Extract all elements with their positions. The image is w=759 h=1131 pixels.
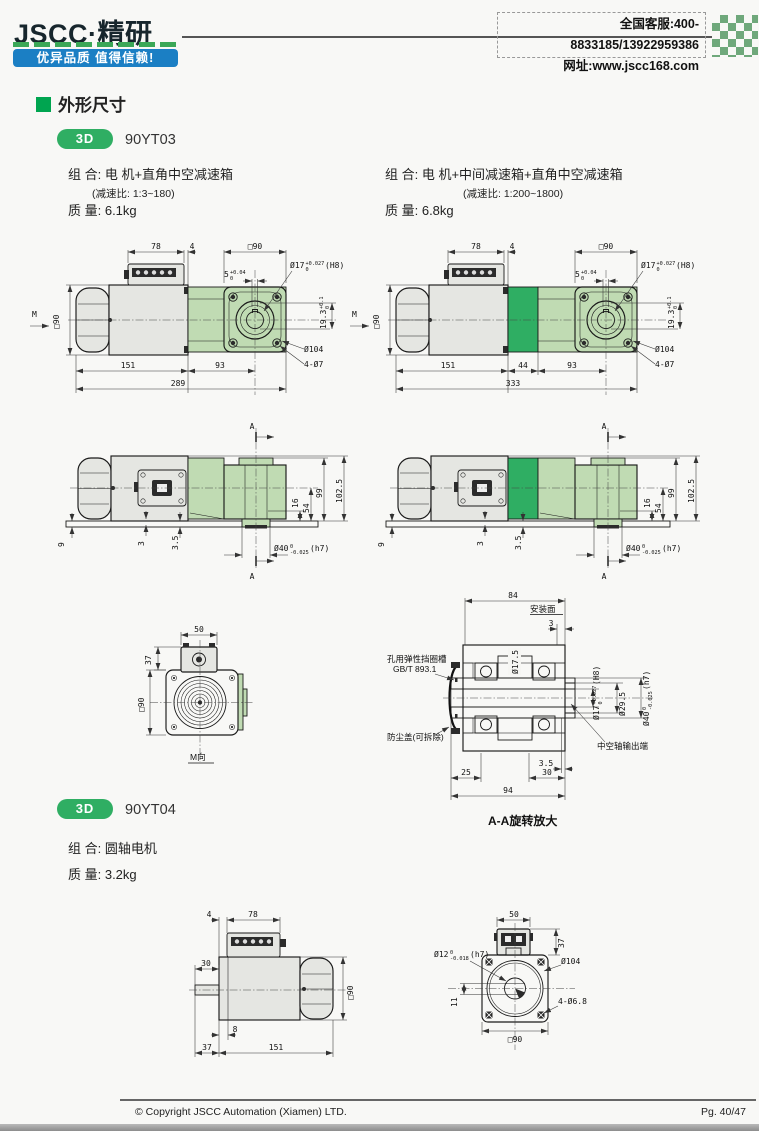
svg-text:16: 16 [643,498,652,508]
svg-text:151: 151 [269,1043,284,1052]
svg-text:0: 0 [598,701,604,704]
svg-text:□90: □90 [599,242,614,251]
svg-text:37: 37 [202,1043,212,1052]
svg-text:3.5: 3.5 [514,535,523,550]
gearbox-shapes [508,458,637,529]
gearbox-shapes [188,287,286,352]
svg-text:0: 0 [290,544,293,550]
svg-text:+0.1: +0.1 [319,297,325,310]
svg-text:16: 16 [291,498,300,508]
svg-text:9: 9 [377,542,386,547]
svg-text:Ø104: Ø104 [655,344,674,354]
svg-text:(H8): (H8) [325,261,344,270]
svg-text:78: 78 [151,242,161,251]
svg-text:99: 99 [667,488,676,498]
svg-text:□90: □90 [346,985,355,1000]
svg-text:+0.027: +0.027 [592,686,598,705]
svg-text:M向: M向 [190,752,206,762]
svg-text:333: 333 [506,379,521,388]
motor-shapes [398,456,508,521]
hotline-text: 全国客服:400-8833185/13922959386 [498,14,699,56]
svg-text:安装面: 安装面 [530,604,556,614]
brand-slogan: 优异品质 值得信赖! [13,49,178,67]
svg-text:Ø40: Ø40 [274,543,289,553]
svg-text:□90: □90 [137,697,146,712]
svg-text:3: 3 [549,619,554,628]
svg-text:A-A旋转放大: A-A旋转放大 [488,813,557,828]
yt03-left-combo: 组 合: 电 机+直角中空减速箱 [68,164,233,183]
gearbox-shapes [188,458,286,529]
svg-text:0: 0 [306,267,309,273]
svg-text:54: 54 [654,503,663,513]
svg-text:99: 99 [315,488,324,498]
svg-text:-0.025: -0.025 [642,550,661,556]
shaft-dia-dim: Ø40 0 -0.025 (h7) [274,543,329,556]
drawing-yt03-side-right: 78 4 □90 5 +0.04 0 M □90 Ø17 +0.027 0 (H… [348,237,753,400]
svg-text:4: 4 [207,910,212,919]
footer-copyright: © Copyright JSCC Automation (Xiamen) LTD… [135,1106,347,1118]
motor-shapes [76,264,189,355]
svg-text:Ø40: Ø40 [641,711,651,726]
svg-text:中空轴输出端: 中空轴输出端 [597,741,649,751]
svg-text:93: 93 [215,361,225,370]
yt04-combo: 组 合: 圆轴电机 [68,838,157,857]
badge-3d-yt03: 3D [57,129,113,149]
gearbox-shapes [508,287,637,352]
svg-text:(h7): (h7) [470,950,489,959]
svg-text:0: 0 [325,306,331,309]
svg-text:A: A [602,422,607,431]
dimensions: 84 安装面 3 Ø17.5 Ø17 +0.027 0 (H8) Ø29.5 Ø… [387,591,654,828]
svg-text:3.5: 3.5 [171,535,180,550]
svg-text:□90: □90 [248,242,263,251]
footer-page-number: Pg. 40/47 [701,1106,746,1118]
svg-text:Ø17.5: Ø17.5 [510,650,520,674]
motor-face-shapes [166,643,247,735]
svg-text:30: 30 [201,959,211,968]
svg-text:(H8): (H8) [592,666,601,685]
svg-text:-0.025: -0.025 [648,691,654,710]
svg-text:151: 151 [121,361,136,370]
svg-text:0: 0 [657,267,660,273]
svg-text:4: 4 [190,242,195,251]
svg-text:5: 5 [575,270,580,279]
svg-text:+0.027: +0.027 [657,261,676,267]
svg-text:-0.018: -0.018 [450,956,469,962]
svg-text:30: 30 [542,768,552,777]
svg-text:289: 289 [171,379,186,388]
svg-text:50: 50 [194,625,204,634]
footer-rule [120,1099,756,1101]
svg-text:0: 0 [642,544,645,550]
svg-text:0: 0 [642,707,648,710]
yt03-right-combo: 组 合: 电 机+中间减速箱+直角中空减速箱 [385,164,623,183]
badge-3d-yt04: 3D [57,799,113,819]
website-text: 网址:www.jscc168.com [498,56,699,77]
svg-text:A: A [250,572,255,581]
svg-text:+0.04: +0.04 [581,270,597,276]
keyway-dim: 5 +0.04 0 [224,270,246,282]
svg-text:Ø104: Ø104 [304,344,323,354]
svg-text:37: 37 [557,938,566,948]
svg-text:□90: □90 [372,314,381,329]
motor-shapes [195,933,333,1020]
svg-text:Ø17: Ø17 [641,260,656,270]
model-name-yt03: 90YT03 [125,132,176,148]
section-bullet [36,97,51,112]
svg-text:8: 8 [233,1025,238,1034]
svg-text:78: 78 [471,242,481,251]
svg-text:Ø29.5: Ø29.5 [617,692,627,716]
svg-text:93: 93 [567,361,577,370]
svg-text:GB/T 893.1: GB/T 893.1 [393,664,437,674]
svg-text:Ø40: Ø40 [626,543,641,553]
svg-text:(h7): (h7) [662,544,681,553]
yt04-mass: 质 量: 3.2kg [68,864,137,883]
svg-text:M: M [32,310,37,319]
yt03-left-ratio: (减速比: 1:3~180) [92,186,175,201]
svg-text:102.5: 102.5 [335,479,344,503]
svg-text:Ø104: Ø104 [561,956,580,966]
svg-text:94: 94 [503,786,513,795]
svg-text:5: 5 [224,270,229,279]
drawing-yt03-top-left: A A 16 54 99 102.5 9 3 3.5 [28,418,368,590]
svg-text:3: 3 [476,541,485,546]
svg-text:+0.027: +0.027 [306,261,325,267]
logo-underline [13,42,180,47]
svg-text:4: 4 [510,242,515,251]
svg-text:9: 9 [57,542,66,547]
svg-text:0: 0 [581,276,584,282]
drawing-m-view: 50 37 □90 M向 [138,620,328,780]
shaft-dia-dim: Ø12 0 -0.018 (h7) [434,949,489,962]
svg-text:54: 54 [302,503,311,513]
key-depth-dim: 19.3 +0.1 0 [319,297,331,330]
svg-text:4-Ø7: 4-Ø7 [655,359,674,369]
base-plate [386,521,670,527]
section-title: 外形尺寸 [58,91,126,116]
svg-text:孔用弹性挡圈槽: 孔用弹性挡圈槽 [387,654,447,664]
svg-text:3: 3 [137,541,146,546]
svg-text:(h7): (h7) [310,544,329,553]
svg-text:19.3: 19.3 [667,310,676,329]
svg-text:0: 0 [673,306,679,309]
bore-dim: Ø17 +0.027 0 (H8) [290,260,344,273]
yt03-right-mass: 质 量: 6.8kg [385,200,454,219]
base-plate [66,521,318,527]
svg-text:□90: □90 [52,314,61,329]
svg-text:A: A [602,572,607,581]
svg-text:102.5: 102.5 [687,479,696,503]
model-name-yt04: 90YT04 [125,802,176,818]
svg-text:-0.025: -0.025 [290,550,309,556]
bottom-edge-bar [0,1124,759,1131]
svg-text:(H8): (H8) [676,261,695,270]
svg-text:(h7): (h7) [642,671,651,690]
svg-text:3.5: 3.5 [539,759,554,768]
checker-decoration [712,15,758,57]
dimensions: 50 37 □90 M向 [137,625,217,763]
svg-text:50: 50 [509,910,519,919]
motor-shapes [396,264,508,355]
svg-text:84: 84 [508,591,518,600]
svg-text:0: 0 [450,950,453,956]
svg-text:+0.1: +0.1 [667,297,673,310]
motor-shapes [78,456,188,521]
svg-text:78: 78 [248,910,258,919]
svg-text:□90: □90 [508,1035,523,1044]
svg-text:Ø12: Ø12 [434,949,449,959]
svg-text:+0.04: +0.04 [230,270,246,276]
svg-text:M: M [352,310,357,319]
drawing-section-aa: 84 安装面 3 Ø17.5 Ø17 +0.027 0 (H8) Ø29.5 Ø… [385,588,715,833]
svg-text:A: A [250,422,255,431]
svg-text:37: 37 [144,655,153,665]
contact-box: 全国客服:400-8833185/13922959386 网址:www.jscc… [497,12,706,58]
yt03-left-mass: 质 量: 6.1kg [68,200,137,219]
svg-text:防尘盖(可拆除): 防尘盖(可拆除) [387,732,444,742]
svg-text:0: 0 [230,276,233,282]
drawing-yt03-top-right: A A 16 54 99 102.5 9 3 3.5 [348,418,753,590]
svg-text:19.3: 19.3 [319,310,328,329]
svg-text:11: 11 [450,997,459,1007]
drawing-yt03-side-left: 78 4 □90 5 +0.04 0 M □90 Ø17 +0.027 0 (H… [28,237,368,400]
drawing-yt04-front: 50 37 Ø12 0 -0.018 (h7) Ø104 4-Ø6.8 11 □… [430,905,660,1073]
svg-text:44: 44 [518,361,528,370]
svg-text:151: 151 [441,361,456,370]
svg-text:Ø17: Ø17 [290,260,305,270]
yt03-right-ratio: (减速比: 1:200~1800) [463,186,563,201]
svg-text:4-Ø7: 4-Ø7 [304,359,323,369]
svg-text:4-Ø6.8: 4-Ø6.8 [558,996,587,1006]
svg-text:25: 25 [461,768,471,777]
page: JSCC·精研 优异品质 值得信赖! 全国客服:400-8833185/1392… [0,0,759,1131]
drawing-yt04-side: 4 78 30 □90 8 37 151 [175,905,433,1070]
